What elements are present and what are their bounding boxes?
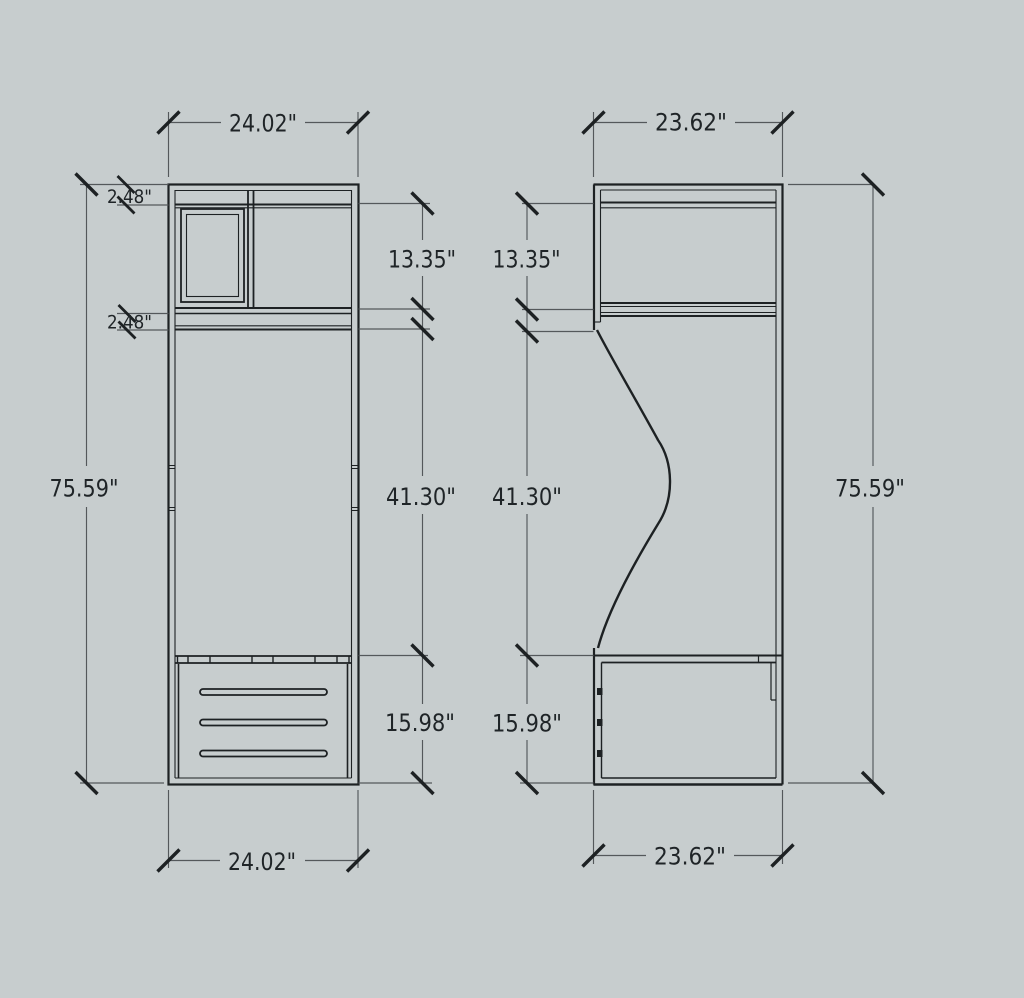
dim-label-front-height: 75.59" bbox=[50, 475, 119, 503]
front-drawer-box-sides bbox=[179, 664, 348, 778]
dim-label-front-drawer-section: 15.98" bbox=[385, 709, 455, 737]
front-drawer-rail bbox=[175, 656, 352, 663]
front-view bbox=[169, 185, 359, 785]
dim-label-side-drawer-section: 15.98" bbox=[492, 710, 562, 738]
cabinet-dimension-drawing: 24.02" 23.62" 2.48" 2.48" 13.35" 13.35" … bbox=[0, 0, 1024, 998]
front-drawer-slot-2 bbox=[200, 720, 327, 726]
dim-label-side-bottom-width: 23.62" bbox=[654, 843, 726, 871]
front-compartment-box bbox=[181, 209, 244, 302]
front-drawer-slot-3 bbox=[200, 751, 327, 757]
front-wall-notches bbox=[169, 466, 359, 511]
dimension-ticks bbox=[76, 112, 885, 872]
side-view bbox=[594, 185, 783, 785]
dim-label-side-upper-section: 13.35" bbox=[493, 246, 561, 274]
side-slide-mark-3 bbox=[597, 750, 603, 757]
side-slide-mark-1 bbox=[597, 688, 603, 695]
dim-label-front-top-width: 24.02" bbox=[229, 110, 297, 138]
dim-label-front-middle-section: 41.30" bbox=[386, 483, 456, 511]
dim-label-side-height: 75.59" bbox=[835, 475, 905, 503]
side-slide-mark-2 bbox=[597, 719, 603, 726]
height-ticks bbox=[76, 174, 885, 795]
front-compartment-box-inner bbox=[187, 215, 239, 297]
side-inner-wall bbox=[601, 190, 777, 778]
side-outer-wall bbox=[594, 185, 783, 785]
dimension-lines bbox=[80, 112, 873, 868]
dim-label-front-shelf-gap: 2.48" bbox=[107, 312, 152, 334]
front-drawer-slot-1 bbox=[200, 689, 327, 695]
front-drawer-rail-segments bbox=[178, 656, 350, 663]
dim-label-front-bottom-width: 24.02" bbox=[228, 848, 296, 876]
dim-label-front-top-rail: 2.48" bbox=[107, 186, 152, 208]
dim-label-front-upper-section: 13.35" bbox=[388, 246, 456, 274]
technical-drawing-canvas: 24.02" 23.62" 2.48" 2.48" 13.35" 13.35" … bbox=[0, 0, 1024, 998]
dim-label-side-top-width: 23.62" bbox=[655, 109, 727, 137]
side-curve-profile bbox=[597, 330, 670, 648]
dim-label-side-middle-section: 41.30" bbox=[492, 483, 562, 511]
side-shelf-lines bbox=[601, 307, 777, 313]
